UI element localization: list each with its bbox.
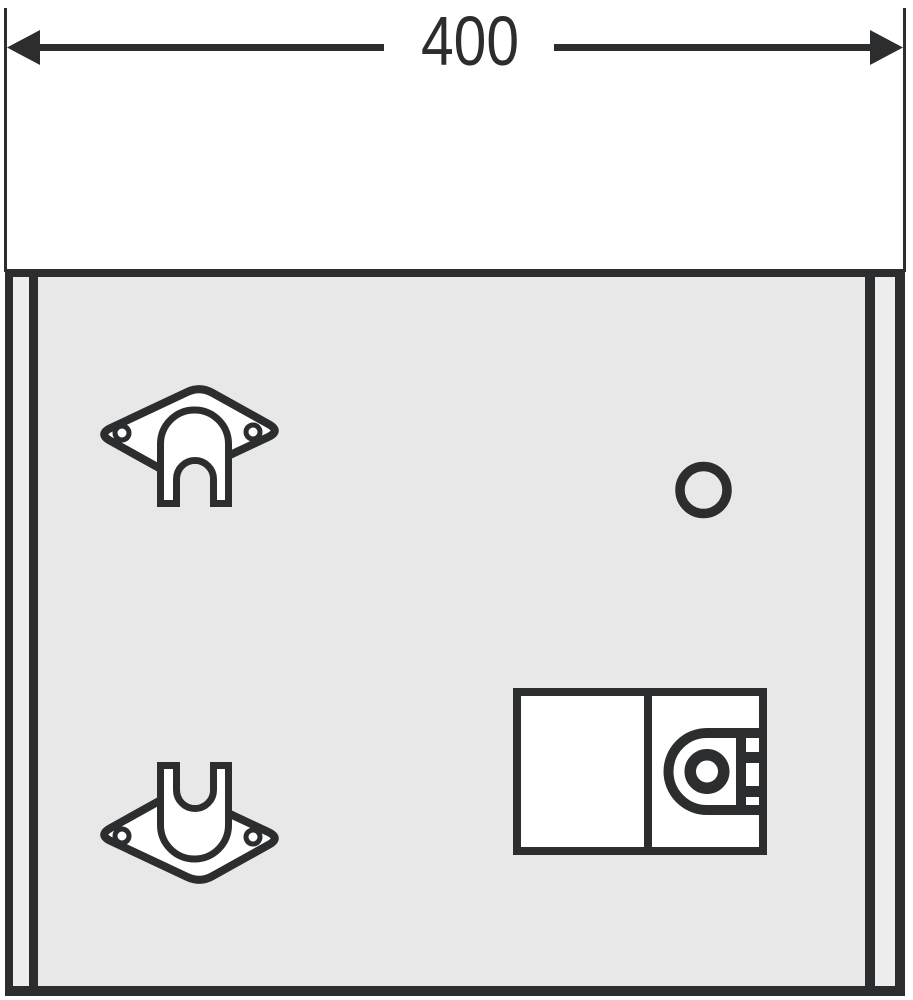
side-wall-right xyxy=(875,277,895,986)
cabinet-body xyxy=(5,269,905,996)
lock-latch-top-edge xyxy=(741,728,763,738)
dimension-arrow-right-icon xyxy=(870,30,903,65)
lock-latch-bottom-edge xyxy=(741,805,763,815)
dimension-label: 400 xyxy=(421,1,519,80)
side-wall-left xyxy=(13,277,29,986)
lock-latch-tab-upper xyxy=(746,752,763,763)
door-panel xyxy=(38,277,865,986)
dimension-width: 400 xyxy=(6,1,905,272)
cabinet-front-view-drawing: 400 xyxy=(0,0,913,1000)
lock-assembly xyxy=(517,692,763,851)
technical-drawing-page: 400 xyxy=(0,0,913,1000)
lock-latch-tab-lower xyxy=(746,786,763,797)
dimension-arrow-left-icon xyxy=(7,30,40,65)
lock-cylinder-icon xyxy=(690,755,724,789)
